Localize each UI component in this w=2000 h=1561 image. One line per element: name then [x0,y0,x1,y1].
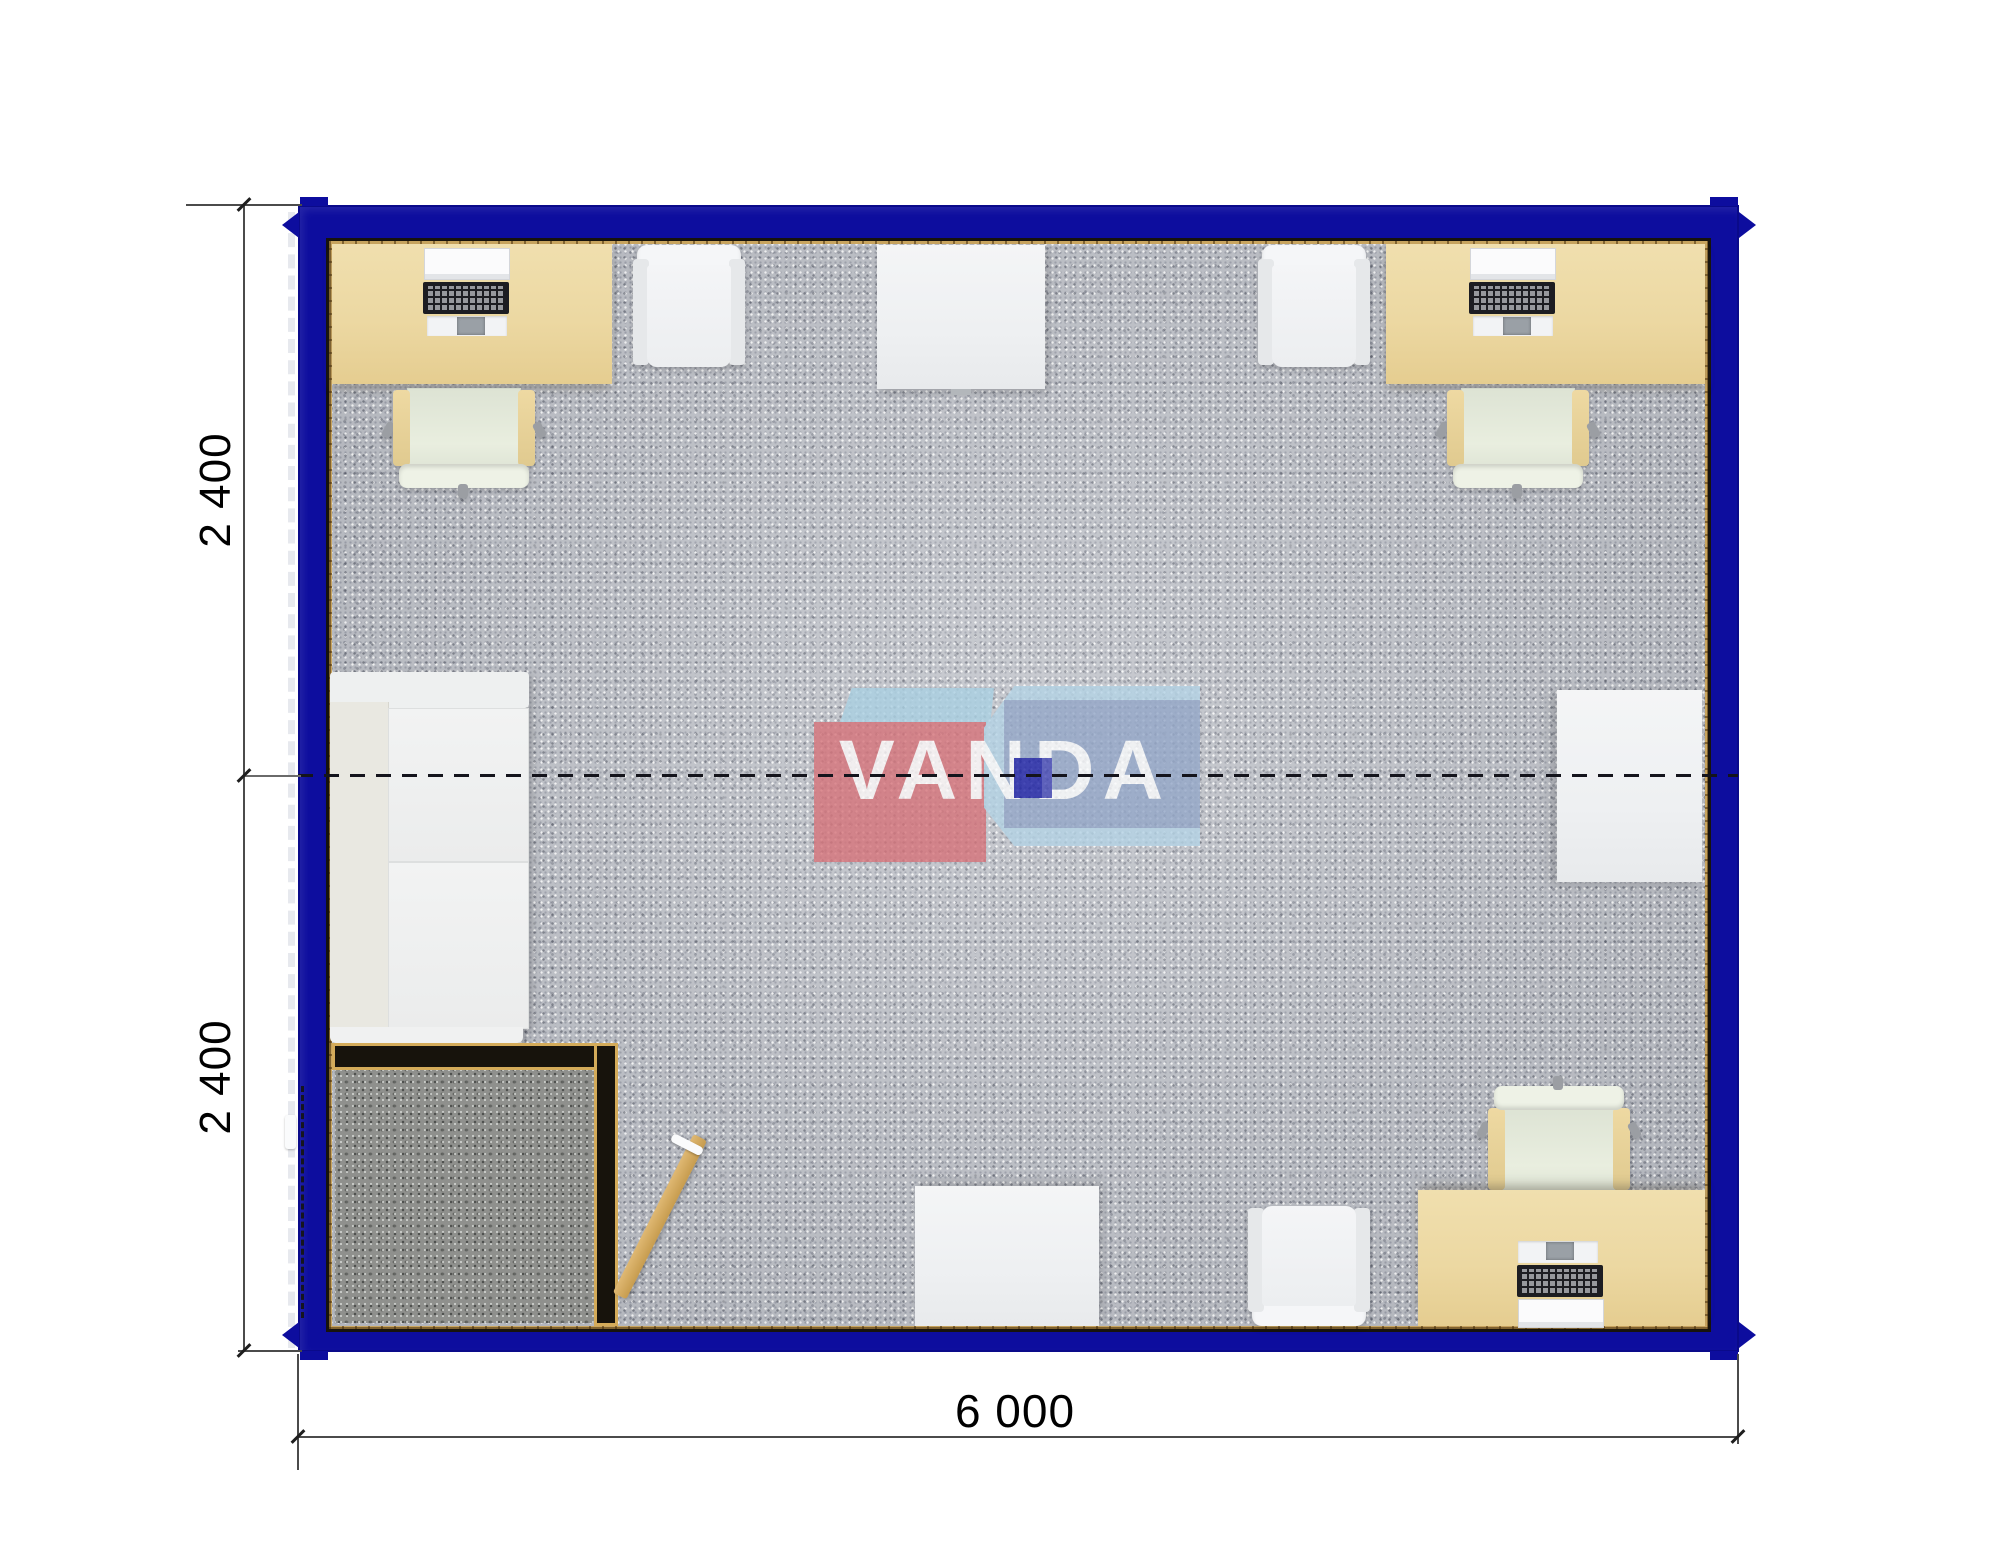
floor-plan-canvas: VANDA 2 400 2 400 6 000 [0,0,2000,1561]
keyboard-keys [1474,286,1550,310]
chair-caster [1553,1076,1563,1090]
chair-seat [647,265,731,367]
chair-armrest-right [1613,1108,1630,1190]
extension-line-bottom-start [297,1354,299,1470]
vestibule-partition-right [594,1043,618,1326]
exterior-door-handle-icon [285,1115,296,1149]
monitor-icon [1470,248,1556,280]
monitor-icon [1518,1299,1604,1328]
module-junction-line [298,774,1738,777]
monitor-icon [424,248,510,280]
sofa-backrest [330,702,389,1027]
pc-unit-icon [1503,317,1531,335]
sofa-cushion [388,862,529,1029]
keyboard-keys [428,286,504,310]
corner-casting-bottom-right [1739,1322,1756,1348]
sofa-left-wall [330,672,529,1027]
office-desk-bottom-right [1418,1190,1705,1326]
chair-seat [1262,1206,1356,1306]
office-desk-top-left [332,244,612,384]
exterior-cladding-left [288,212,295,1348]
pc-unit-icon [1546,1242,1574,1260]
vestibule-partition-top [332,1043,618,1070]
corner-step-top-right [1710,197,1738,206]
keyboard-icon [423,282,509,314]
chair-seat [1272,265,1356,367]
keyboard-keys [1522,1269,1598,1293]
visitor-chair-top-right [1258,245,1370,369]
office-chair-bottom-right [1488,1086,1630,1192]
table-top-center [877,245,1045,389]
extension-line-mid-left [243,775,301,777]
pc-unit-icon [457,317,485,335]
chair-armrest-left [1447,390,1464,466]
chair-armrest-right [1354,1208,1370,1312]
office-desk-top-right [1386,244,1705,384]
dimension-label-left-bottom: 2 400 [191,997,235,1157]
visitor-chair-top-left [633,245,745,369]
cabinet-right-wall [1557,690,1702,882]
table-leg [951,389,971,395]
chair-armrest-right [729,259,745,365]
office-chair-top-right [1447,388,1589,488]
chair-seat [407,388,521,468]
chair-armrest-right [1572,390,1589,466]
exterior-door-dashed-mark [301,1086,304,1318]
table-bottom-center [915,1186,1099,1326]
chair-caster [1512,484,1522,498]
corner-step-bottom-left [300,1351,328,1360]
logo-dark-square [1014,758,1052,798]
logo-text: VANDA [818,728,1192,812]
chair-seat [1502,1106,1616,1192]
keyboard-icon [1469,282,1555,314]
chair-seat [1461,388,1575,468]
keyboard-icon [1517,1265,1603,1297]
chair-armrest-left [393,390,410,466]
visitor-chair-bottom [1248,1204,1370,1326]
chair-caster [458,484,468,498]
corner-step-top-left [300,197,328,206]
dimension-label-left-top: 2 400 [191,410,235,570]
corner-casting-top-right [1739,212,1756,238]
extension-line-bottom-left [238,1350,302,1352]
sofa-edge [330,1027,523,1043]
extension-line-bottom-end [1737,1354,1739,1444]
chair-armrest-left [1488,1108,1505,1190]
dimension-label-bottom: 6 000 [915,1384,1115,1438]
corner-step-bottom-right [1710,1351,1738,1360]
office-chair-top-left [393,388,535,488]
entrance-vestibule-carpet [335,1070,594,1323]
chair-armrest-right [518,390,535,466]
sofa-cushion [388,708,529,862]
chair-armrest-right [1354,259,1370,365]
